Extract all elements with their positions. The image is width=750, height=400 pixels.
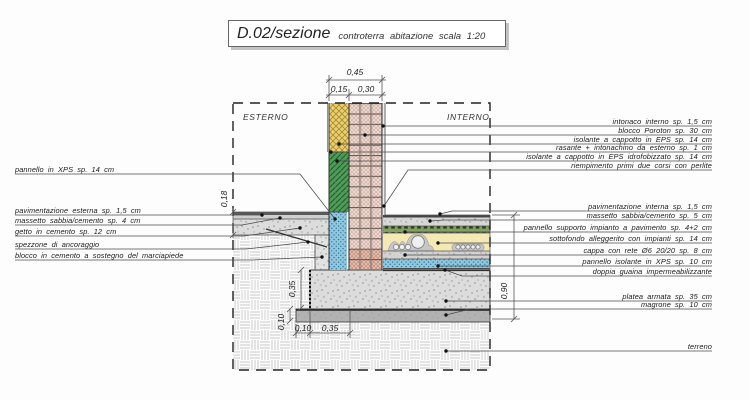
exterior-pavement xyxy=(233,212,329,235)
dimension-label: 0,10 xyxy=(275,307,287,337)
material-label: sottofondo alleggerito con impianti sp. … xyxy=(549,234,712,243)
material-label: blocco Poroton sp. 30 cm xyxy=(618,126,712,135)
material-label: pannello supporto impianto a pavimento s… xyxy=(524,223,712,232)
zone-label-interno: INTERNO xyxy=(447,112,489,122)
curb-block xyxy=(315,235,330,270)
material-label: pannello in XPS sp. 14 cm xyxy=(15,165,114,174)
material-label: getto in cemento sp. 12 cm xyxy=(15,227,116,236)
dimension-label: 0,18 xyxy=(218,184,230,214)
material-label: rasante + intonachino da esterno sp. 1 c… xyxy=(556,143,712,152)
material-label: doppia guaina impermeabilizzante xyxy=(593,267,712,276)
material-label: massetto sabbia/cemento sp. 5 cm xyxy=(587,211,712,220)
drawing-subtitle: controterra abitazione scala 1:20 xyxy=(338,31,485,42)
material-label: riempimento primi due corsi con perlite xyxy=(571,161,712,170)
dimension-label: 0,35 xyxy=(315,322,345,334)
detail-drawing-canvas: D.02/sezione controterra abitazione scal… xyxy=(0,0,750,400)
material-label: pavimentazione esterna sp. 1,5 cm xyxy=(15,206,141,215)
material-label: magrone sp. 10 cm xyxy=(641,300,712,309)
material-label: pannello isolante in XPS sp. 10 cm xyxy=(582,257,712,266)
material-label: spezzone di ancoraggio xyxy=(15,240,99,249)
dimension-label: 0,15 xyxy=(324,83,354,95)
dimension-label: 0,90 xyxy=(498,276,510,306)
zone-label-esterno: ESTERNO xyxy=(243,112,288,122)
material-label: blocco in cemento a sostegno del marciap… xyxy=(15,251,183,260)
drawing-title: D.02/sezione xyxy=(237,25,330,43)
title-block: D.02/sezione controterra abitazione scal… xyxy=(228,20,506,47)
material-label: terreno xyxy=(688,342,712,351)
section-drawing xyxy=(0,0,750,400)
material-label: massetto sabbia/cemento sp. 4 cm xyxy=(15,216,140,225)
material-label: cappa con rete Ø6 20/20 sp. 8 cm xyxy=(583,246,712,255)
material-label: pavimentazione interna sp. 1,5 cm xyxy=(588,202,712,211)
material-label: isolante a cappotto in EPS idrofobizzato… xyxy=(526,152,712,161)
dimension-label: 0,45 xyxy=(340,66,370,78)
dimension-label: 0,35 xyxy=(286,274,298,304)
dimension-label: 0,10 xyxy=(288,322,318,334)
wall-layers xyxy=(328,103,386,270)
material-label: intonaco interno sp. 1,5 cm xyxy=(613,117,712,126)
dimension-label: 0,30 xyxy=(351,83,381,95)
